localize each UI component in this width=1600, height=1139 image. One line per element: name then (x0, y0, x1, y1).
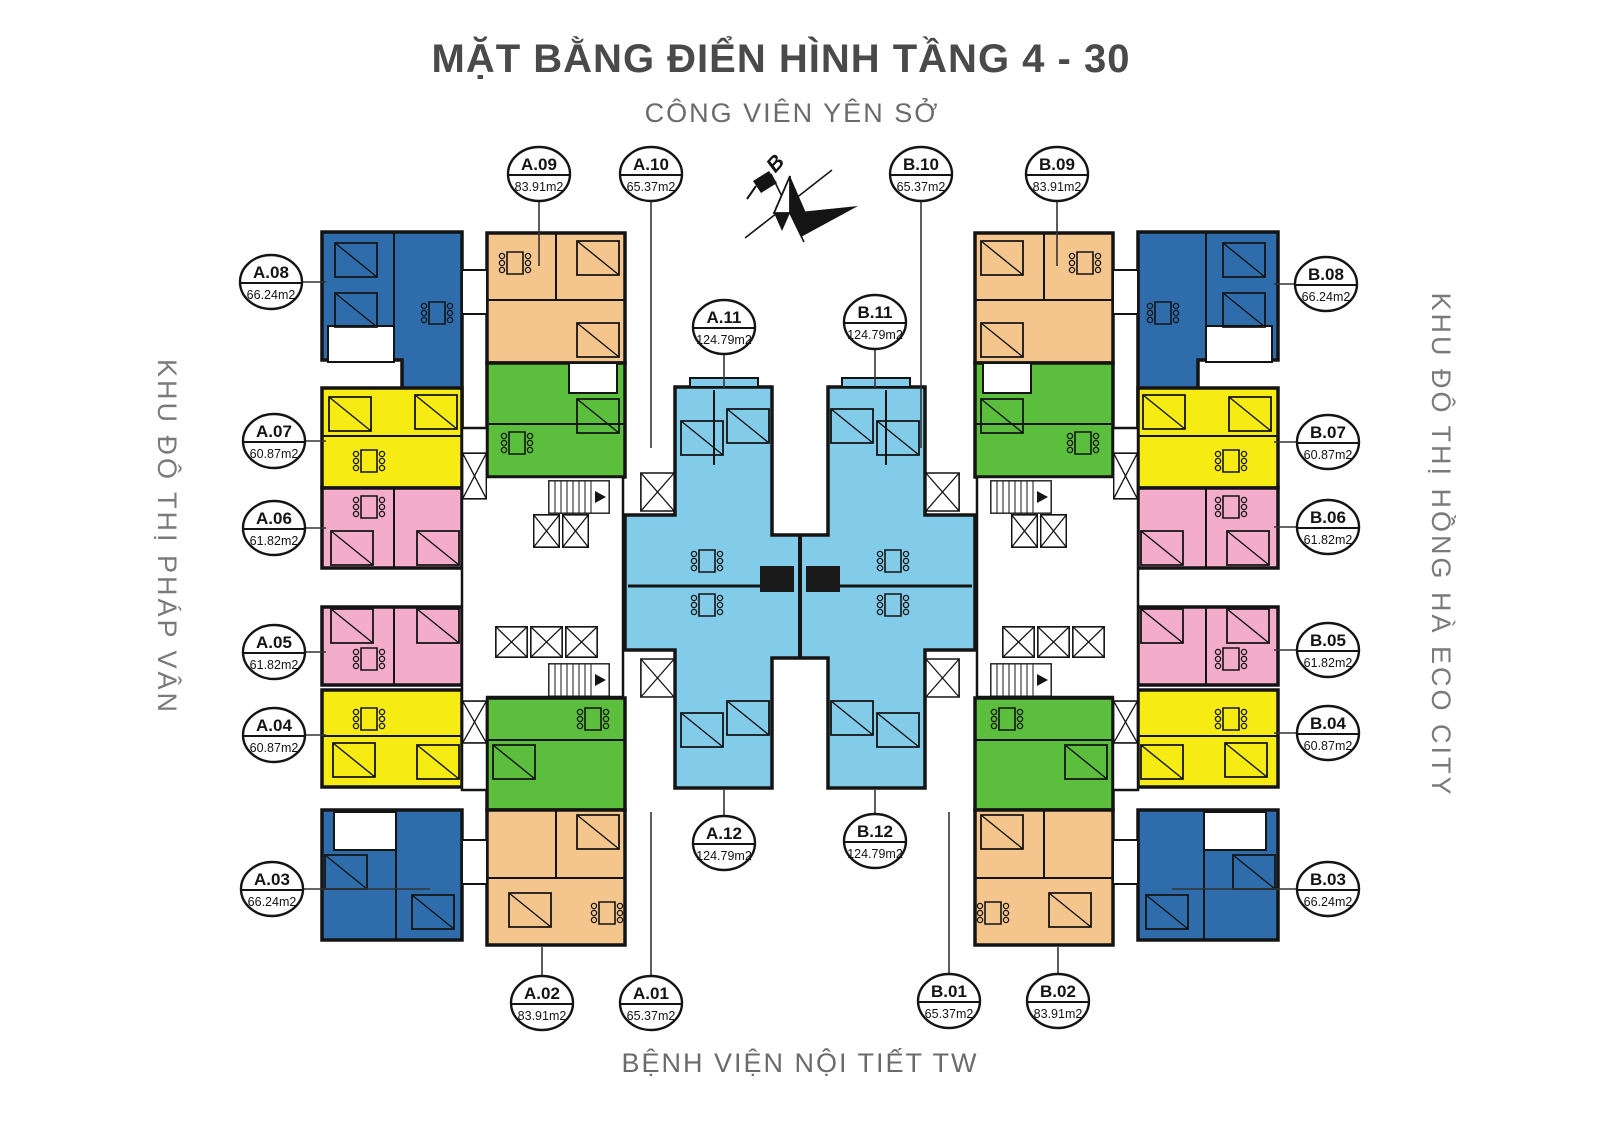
svg-text:B.07: B.07 (1310, 423, 1346, 442)
void-shaft-icon (926, 473, 959, 511)
kitchen-counter (760, 566, 794, 592)
svg-text:124.79m2: 124.79m2 (696, 849, 752, 863)
svg-text:66.24m2: 66.24m2 (1304, 895, 1353, 909)
floor-plan-page: MẶT BẰNG ĐIỂN HÌNH TẦNG 4 - 30 CÔNG VIÊN… (0, 0, 1600, 1139)
svg-text:66.24m2: 66.24m2 (248, 895, 297, 909)
callout-a10: A.10 65.37m2 (620, 147, 682, 201)
svg-text:A.04: A.04 (256, 716, 292, 735)
svg-text:61.82m2: 61.82m2 (250, 658, 299, 672)
unit-a06 (322, 488, 462, 568)
callout-a12: A.12 124.79m2 (693, 816, 755, 870)
callout-b10: B.10 65.37m2 (890, 147, 952, 201)
void-shaft-icon (926, 659, 959, 697)
svg-text:61.82m2: 61.82m2 (1304, 656, 1353, 670)
svg-text:B.04: B.04 (1310, 714, 1346, 733)
label-east-area: KHU ĐÔ THỊ HỒNG HÀ ECO CITY (1426, 292, 1457, 797)
callout-b04: B.04 60.87m2 (1297, 706, 1359, 760)
floor-plan-canvas: MẶT BẰNG ĐIỂN HÌNH TẦNG 4 - 30 CÔNG VIÊN… (0, 0, 1600, 1139)
svg-text:B.06: B.06 (1310, 508, 1346, 527)
link-corridor (1113, 840, 1138, 884)
callout-a05: A.05 61.82m2 (243, 625, 305, 679)
stairs-icon (549, 481, 609, 513)
svg-text:83.91m2: 83.91m2 (1033, 180, 1082, 194)
svg-text:B.11: B.11 (858, 303, 893, 322)
elevator-shaft-icon (1003, 627, 1034, 657)
svg-text:A.06: A.06 (256, 509, 292, 528)
svg-text:B.10: B.10 (903, 155, 939, 174)
callout-a03: A.03 66.24m2 (241, 862, 303, 916)
elevator-shaft-icon (1038, 627, 1069, 657)
elevator-shaft-icon (1012, 515, 1038, 547)
elevator-shaft-icon (566, 627, 597, 657)
unit-b04 (1138, 690, 1278, 787)
callout-a04: A.04 60.87m2 (243, 708, 305, 762)
svg-text:65.37m2: 65.37m2 (627, 180, 676, 194)
svg-text:124.79m2: 124.79m2 (847, 847, 903, 861)
svg-text:A.09: A.09 (521, 155, 557, 174)
callout-b05: B.05 61.82m2 (1297, 623, 1359, 677)
svg-text:B.12: B.12 (857, 822, 893, 841)
void-shaft-icon (641, 659, 674, 697)
elevator-shaft-icon (1073, 627, 1104, 657)
svg-text:60.87m2: 60.87m2 (1304, 448, 1353, 462)
unit-a04 (322, 690, 462, 787)
callout-a08: A.08 66.24m2 (240, 255, 302, 309)
elevator-shaft-icon (531, 627, 562, 657)
stairs-icon (991, 664, 1051, 696)
callout-b01: B.01 65.37m2 (918, 974, 980, 1028)
elevator-shaft-icon (563, 515, 589, 547)
callout-a02: A.02 83.91m2 (511, 976, 573, 1030)
svg-text:83.91m2: 83.91m2 (1034, 1007, 1083, 1021)
svg-text:A.08: A.08 (253, 263, 289, 282)
svg-text:83.91m2: 83.91m2 (515, 180, 564, 194)
page-title: MẶT BẰNG ĐIỂN HÌNH TẦNG 4 - 30 (432, 34, 1131, 81)
svg-text:124.79m2: 124.79m2 (847, 328, 903, 342)
callout-b12: B.12 124.79m2 (844, 814, 906, 868)
svg-text:66.24m2: 66.24m2 (1302, 290, 1351, 304)
svg-text:60.87m2: 60.87m2 (250, 741, 299, 755)
callout-b06: B.06 61.82m2 (1297, 500, 1359, 554)
svg-text:60.87m2: 60.87m2 (250, 447, 299, 461)
svg-text:A.12: A.12 (706, 824, 742, 843)
callout-a09: A.09 83.91m2 (508, 147, 570, 201)
svg-text:A.05: A.05 (256, 633, 292, 652)
void-shaft-icon (641, 473, 674, 511)
void-shaft-icon (1114, 701, 1138, 743)
void-shaft-icon (463, 701, 487, 743)
unit-a03 (322, 810, 462, 940)
unit-center-wings (625, 378, 975, 788)
svg-text:61.82m2: 61.82m2 (250, 534, 299, 548)
label-west-area: KHU ĐÔ THỊ PHÁP VÂN (152, 359, 183, 715)
unit-a07 (322, 388, 462, 488)
link-corridor (462, 270, 487, 314)
svg-text:B.01: B.01 (931, 982, 967, 1001)
elevator-shaft-icon (496, 627, 527, 657)
svg-text:83.91m2: 83.91m2 (518, 1009, 567, 1023)
elevator-shaft-icon (1041, 515, 1067, 547)
stairs-icon (991, 481, 1051, 513)
unit-a10 (487, 363, 625, 477)
callout-b03: B.03 66.24m2 (1297, 862, 1359, 916)
callout-b08: B.08 66.24m2 (1295, 257, 1357, 311)
svg-text:65.37m2: 65.37m2 (627, 1009, 676, 1023)
svg-text:A.01: A.01 (633, 984, 669, 1003)
link-corridor (462, 840, 487, 884)
svg-text:B.08: B.08 (1308, 265, 1344, 284)
stairs-icon (549, 664, 609, 696)
kitchen-counter (806, 566, 840, 592)
void-shaft-icon (1114, 453, 1138, 499)
link-corridor (1113, 270, 1138, 314)
callout-b07: B.07 60.87m2 (1297, 415, 1359, 469)
callout-b11: B.11 124.79m2 (844, 295, 906, 349)
svg-text:A.11: A.11 (707, 308, 742, 327)
callout-b09: B.09 83.91m2 (1026, 147, 1088, 201)
svg-text:60.87m2: 60.87m2 (1304, 739, 1353, 753)
svg-text:A.03: A.03 (254, 870, 290, 889)
svg-text:B.02: B.02 (1040, 982, 1076, 1001)
callout-a01: A.01 65.37m2 (620, 976, 682, 1030)
svg-text:A.10: A.10 (633, 155, 669, 174)
svg-text:65.37m2: 65.37m2 (897, 180, 946, 194)
unit-b05 (1138, 607, 1278, 685)
svg-text:66.24m2: 66.24m2 (247, 288, 296, 302)
callout-a11: A.11 124.79m2 (693, 300, 755, 354)
elevator-shaft-icon (534, 515, 560, 547)
void-shaft-icon (463, 453, 487, 499)
compass-north-icon: B (745, 150, 858, 242)
callout-b02: B.02 83.91m2 (1027, 974, 1089, 1028)
unit-b07 (1138, 388, 1278, 488)
callout-a06: A.06 61.82m2 (243, 501, 305, 555)
unit-b10 (975, 363, 1113, 477)
svg-text:B.05: B.05 (1310, 631, 1346, 650)
label-north-park: CÔNG VIÊN YÊN SỞ (645, 96, 940, 128)
svg-text:61.82m2: 61.82m2 (1304, 533, 1353, 547)
svg-text:A.02: A.02 (524, 984, 560, 1003)
svg-text:A.07: A.07 (256, 422, 292, 441)
label-south-hospital: BỆNH VIỆN NỘI TIẾT TW (621, 1047, 978, 1078)
svg-text:B.03: B.03 (1310, 870, 1346, 889)
svg-text:124.79m2: 124.79m2 (696, 333, 752, 347)
svg-text:B.09: B.09 (1039, 155, 1075, 174)
callout-a07: A.07 60.87m2 (243, 414, 305, 468)
svg-text:65.37m2: 65.37m2 (925, 1007, 974, 1021)
